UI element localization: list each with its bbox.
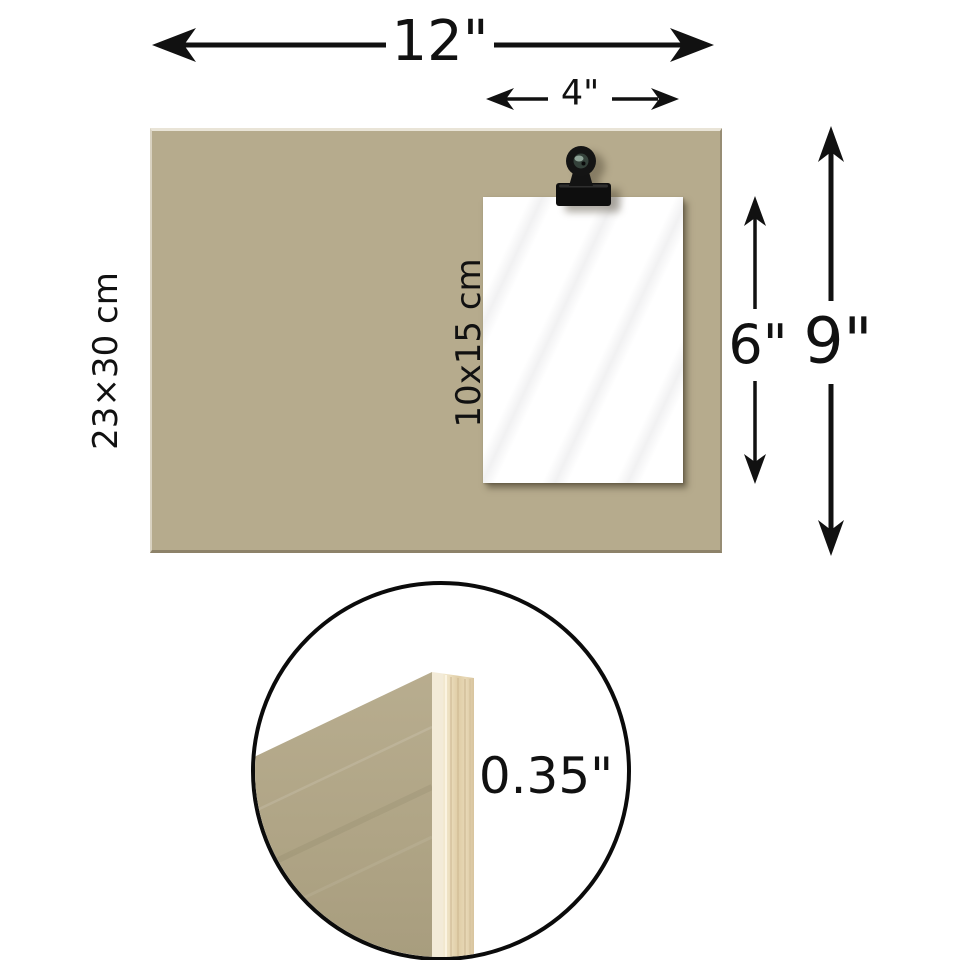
photo-width-label: 4" xyxy=(561,77,599,112)
clip-ring-shadow-dot xyxy=(582,162,586,166)
thickness-label: 0.35" xyxy=(479,751,613,801)
clipped-photo xyxy=(483,197,683,483)
board-metric-label: 23×30 cm xyxy=(89,272,123,450)
photo-height-label: 6" xyxy=(728,318,787,372)
wood-corner-highlight xyxy=(432,672,443,957)
board-height-label: 9" xyxy=(803,310,872,373)
wood-face xyxy=(255,672,432,957)
board-width-label: 12" xyxy=(391,14,488,70)
clip-ring-glint xyxy=(575,156,584,162)
thickness-inset: 0.35" xyxy=(251,581,631,960)
binder-clip-icon xyxy=(550,138,620,210)
product-dimension-diagram: 12" 4" 6" 9" 23×30 cm 10x15 cm xyxy=(0,0,960,960)
photo-metric-label: 10x15 cm xyxy=(452,258,486,427)
